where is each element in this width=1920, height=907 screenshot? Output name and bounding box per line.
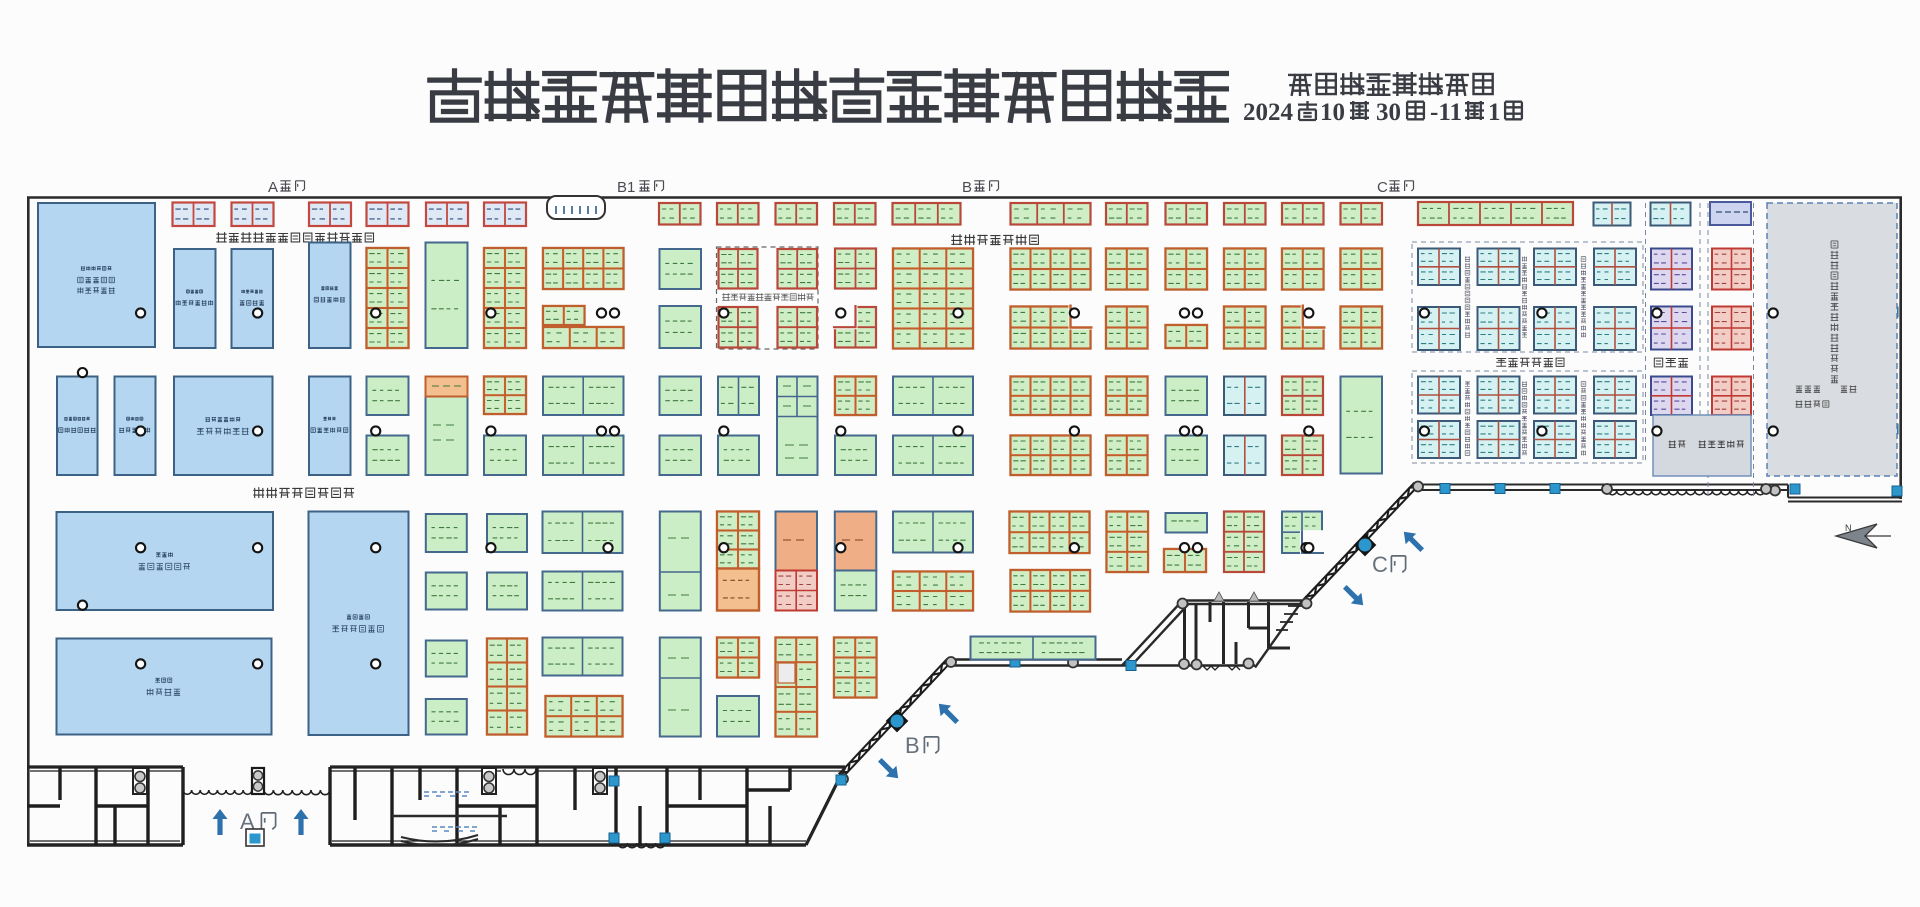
svg-text:C: C xyxy=(1377,179,1388,196)
svg-text:C: C xyxy=(1372,552,1388,577)
svg-text:A: A xyxy=(268,179,278,196)
svg-text:B: B xyxy=(905,733,920,758)
svg-text:30: 30 xyxy=(1376,99,1401,126)
svg-text:B: B xyxy=(962,179,972,196)
svg-text:-11: -11 xyxy=(1430,99,1462,126)
svg-text:N: N xyxy=(1845,523,1852,533)
svg-text:B1: B1 xyxy=(617,179,635,196)
svg-text:10: 10 xyxy=(1320,99,1345,126)
svg-text:1: 1 xyxy=(1488,99,1501,126)
svg-text:2024: 2024 xyxy=(1243,99,1294,126)
